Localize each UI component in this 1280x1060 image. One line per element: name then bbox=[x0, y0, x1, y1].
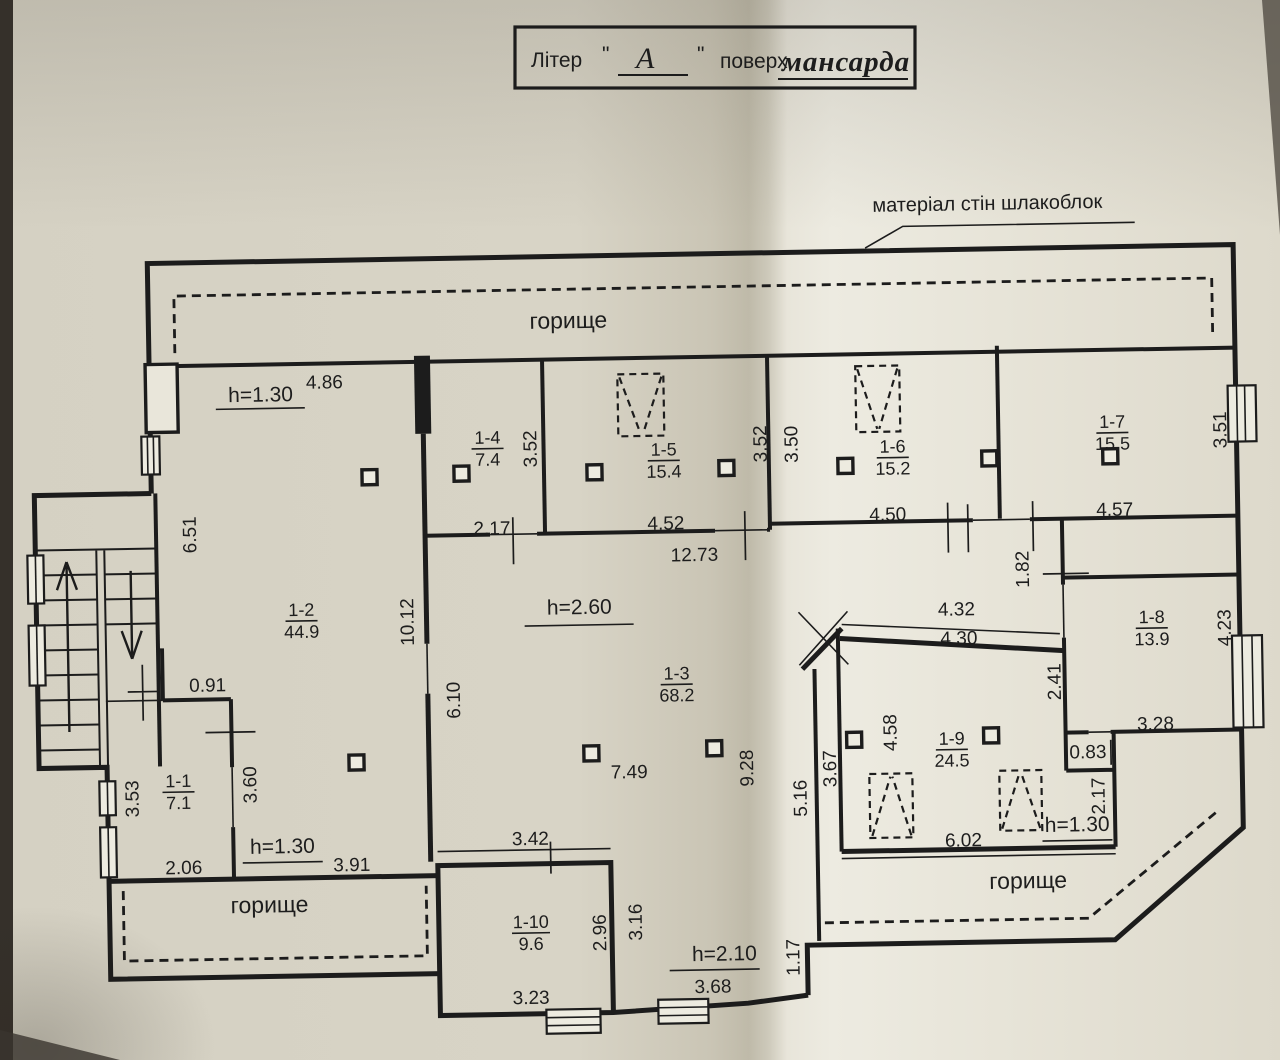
dim-6-10: 6.10 bbox=[444, 682, 466, 719]
dim-2-17: 2.17 bbox=[473, 518, 510, 540]
room-label-1-4: 1-47.4 bbox=[471, 427, 504, 470]
svg-text:68.2: 68.2 bbox=[659, 685, 694, 706]
dim-6-51: 6.51 bbox=[180, 516, 202, 553]
dim-2-41: 2.41 bbox=[1044, 663, 1066, 700]
room-label-1-3: 1-368.2 bbox=[659, 663, 695, 706]
height-bottom-center: h=2.10 bbox=[692, 942, 757, 966]
dim-4-58: 4.58 bbox=[880, 714, 902, 751]
dim-4-30: 4.30 bbox=[940, 628, 977, 650]
dim-6-02: 6.02 bbox=[945, 830, 982, 852]
title-floor-value: мансарда bbox=[781, 46, 910, 78]
dim-7-49: 7.49 bbox=[611, 762, 648, 784]
dim-4-52: 4.52 bbox=[647, 513, 684, 535]
svg-text:1-8: 1-8 bbox=[1138, 607, 1164, 627]
svg-text:15.4: 15.4 bbox=[646, 461, 681, 482]
window-stairwell-2 bbox=[29, 625, 46, 685]
dim-3-23: 3.23 bbox=[512, 988, 549, 1010]
title-quote-open: " bbox=[602, 43, 609, 66]
title-prefix: Літер bbox=[531, 49, 582, 72]
title-floor-word: поверх bbox=[720, 50, 788, 73]
svg-text:1-9: 1-9 bbox=[939, 728, 965, 748]
window-right-room7 bbox=[1228, 385, 1257, 441]
floor-plan-drawing: матеріал стін шлакоблок горище горище го… bbox=[0, 0, 1280, 1060]
window-right-room8 bbox=[1232, 635, 1264, 728]
room-label-1-2: 1-244.9 bbox=[284, 600, 320, 643]
dim-0-91: 0.91 bbox=[189, 675, 226, 697]
svg-text:1-7: 1-7 bbox=[1099, 412, 1125, 432]
height-center: h=2.60 bbox=[547, 596, 612, 620]
window-stairwell-1 bbox=[27, 555, 44, 603]
material-note-text: матеріал стін шлакоблок bbox=[872, 191, 1102, 217]
dim-4-50: 4.50 bbox=[869, 504, 906, 526]
svg-text:7.4: 7.4 bbox=[475, 449, 500, 469]
attic-label-top: горище bbox=[529, 307, 607, 334]
attic-label-bottom-right: горище bbox=[989, 867, 1067, 894]
dim-3-42: 3.42 bbox=[512, 829, 549, 851]
dim-4-57: 4.57 bbox=[1096, 499, 1133, 521]
window-bottom-room10 bbox=[546, 1009, 600, 1034]
svg-text:15.2: 15.2 bbox=[875, 458, 910, 479]
window-left-upper bbox=[141, 436, 160, 474]
scanned-floor-plan-page: матеріал стін шлакоблок горище горище го… bbox=[0, 0, 1280, 1060]
title-letter: А bbox=[634, 42, 655, 75]
dim-3-51: 3.51 bbox=[1210, 411, 1232, 448]
room-label-1-9: 1-924.5 bbox=[934, 728, 970, 771]
dim-5-16: 5.16 bbox=[790, 780, 812, 817]
room-label-1-8: 1-813.9 bbox=[1134, 607, 1170, 650]
svg-text:15.5: 15.5 bbox=[1095, 433, 1130, 454]
svg-text:1-10: 1-10 bbox=[513, 912, 549, 933]
dim-4-86: 4.86 bbox=[306, 372, 343, 394]
height-top-left: h=1.30 bbox=[228, 383, 293, 407]
room-label-1-7: 1-715.5 bbox=[1094, 411, 1130, 454]
dim-3-67: 3.67 bbox=[820, 750, 842, 787]
dim-4-23: 4.23 bbox=[1214, 609, 1236, 646]
svg-text:24.5: 24.5 bbox=[934, 750, 969, 771]
svg-text:44.9: 44.9 bbox=[284, 622, 319, 643]
svg-text:9.6: 9.6 bbox=[519, 934, 544, 954]
dim-3-16: 3.16 bbox=[626, 903, 648, 940]
dim-2-17-r: 2.17 bbox=[1088, 777, 1110, 814]
room-label-1-5: 1-515.4 bbox=[646, 439, 682, 482]
dim-1-82: 1.82 bbox=[1012, 551, 1034, 588]
dim-3-68: 3.68 bbox=[694, 976, 731, 998]
svg-text:1-6: 1-6 bbox=[879, 436, 905, 456]
room-label-1-6: 1-615.2 bbox=[875, 436, 911, 479]
dim-3-28: 3.28 bbox=[1137, 714, 1174, 736]
svg-text:1-3: 1-3 bbox=[663, 663, 689, 683]
dim-3-52-a: 3.52 bbox=[520, 430, 542, 467]
dim-3-50: 3.50 bbox=[781, 426, 803, 463]
svg-text:1-4: 1-4 bbox=[474, 427, 500, 447]
dim-4-32: 4.32 bbox=[938, 599, 975, 621]
window-bottom-center bbox=[658, 999, 708, 1024]
dim-10-12: 10.12 bbox=[397, 598, 419, 646]
wall-pier bbox=[145, 364, 178, 433]
height-bottom-right: h=1.30 bbox=[1045, 813, 1110, 837]
dim-9-28: 9.28 bbox=[737, 749, 759, 786]
dim-2-96: 2.96 bbox=[590, 914, 612, 951]
svg-text:1-5: 1-5 bbox=[650, 439, 676, 459]
dim-3-52-b: 3.52 bbox=[750, 425, 772, 462]
title-quote-close: " bbox=[697, 43, 704, 66]
svg-text:13.9: 13.9 bbox=[1134, 629, 1169, 650]
svg-text:1-2: 1-2 bbox=[288, 600, 314, 620]
dim-12-73: 12.73 bbox=[671, 545, 719, 567]
dim-0-83: 0.83 bbox=[1069, 742, 1106, 764]
dim-1-17: 1.17 bbox=[783, 939, 805, 976]
